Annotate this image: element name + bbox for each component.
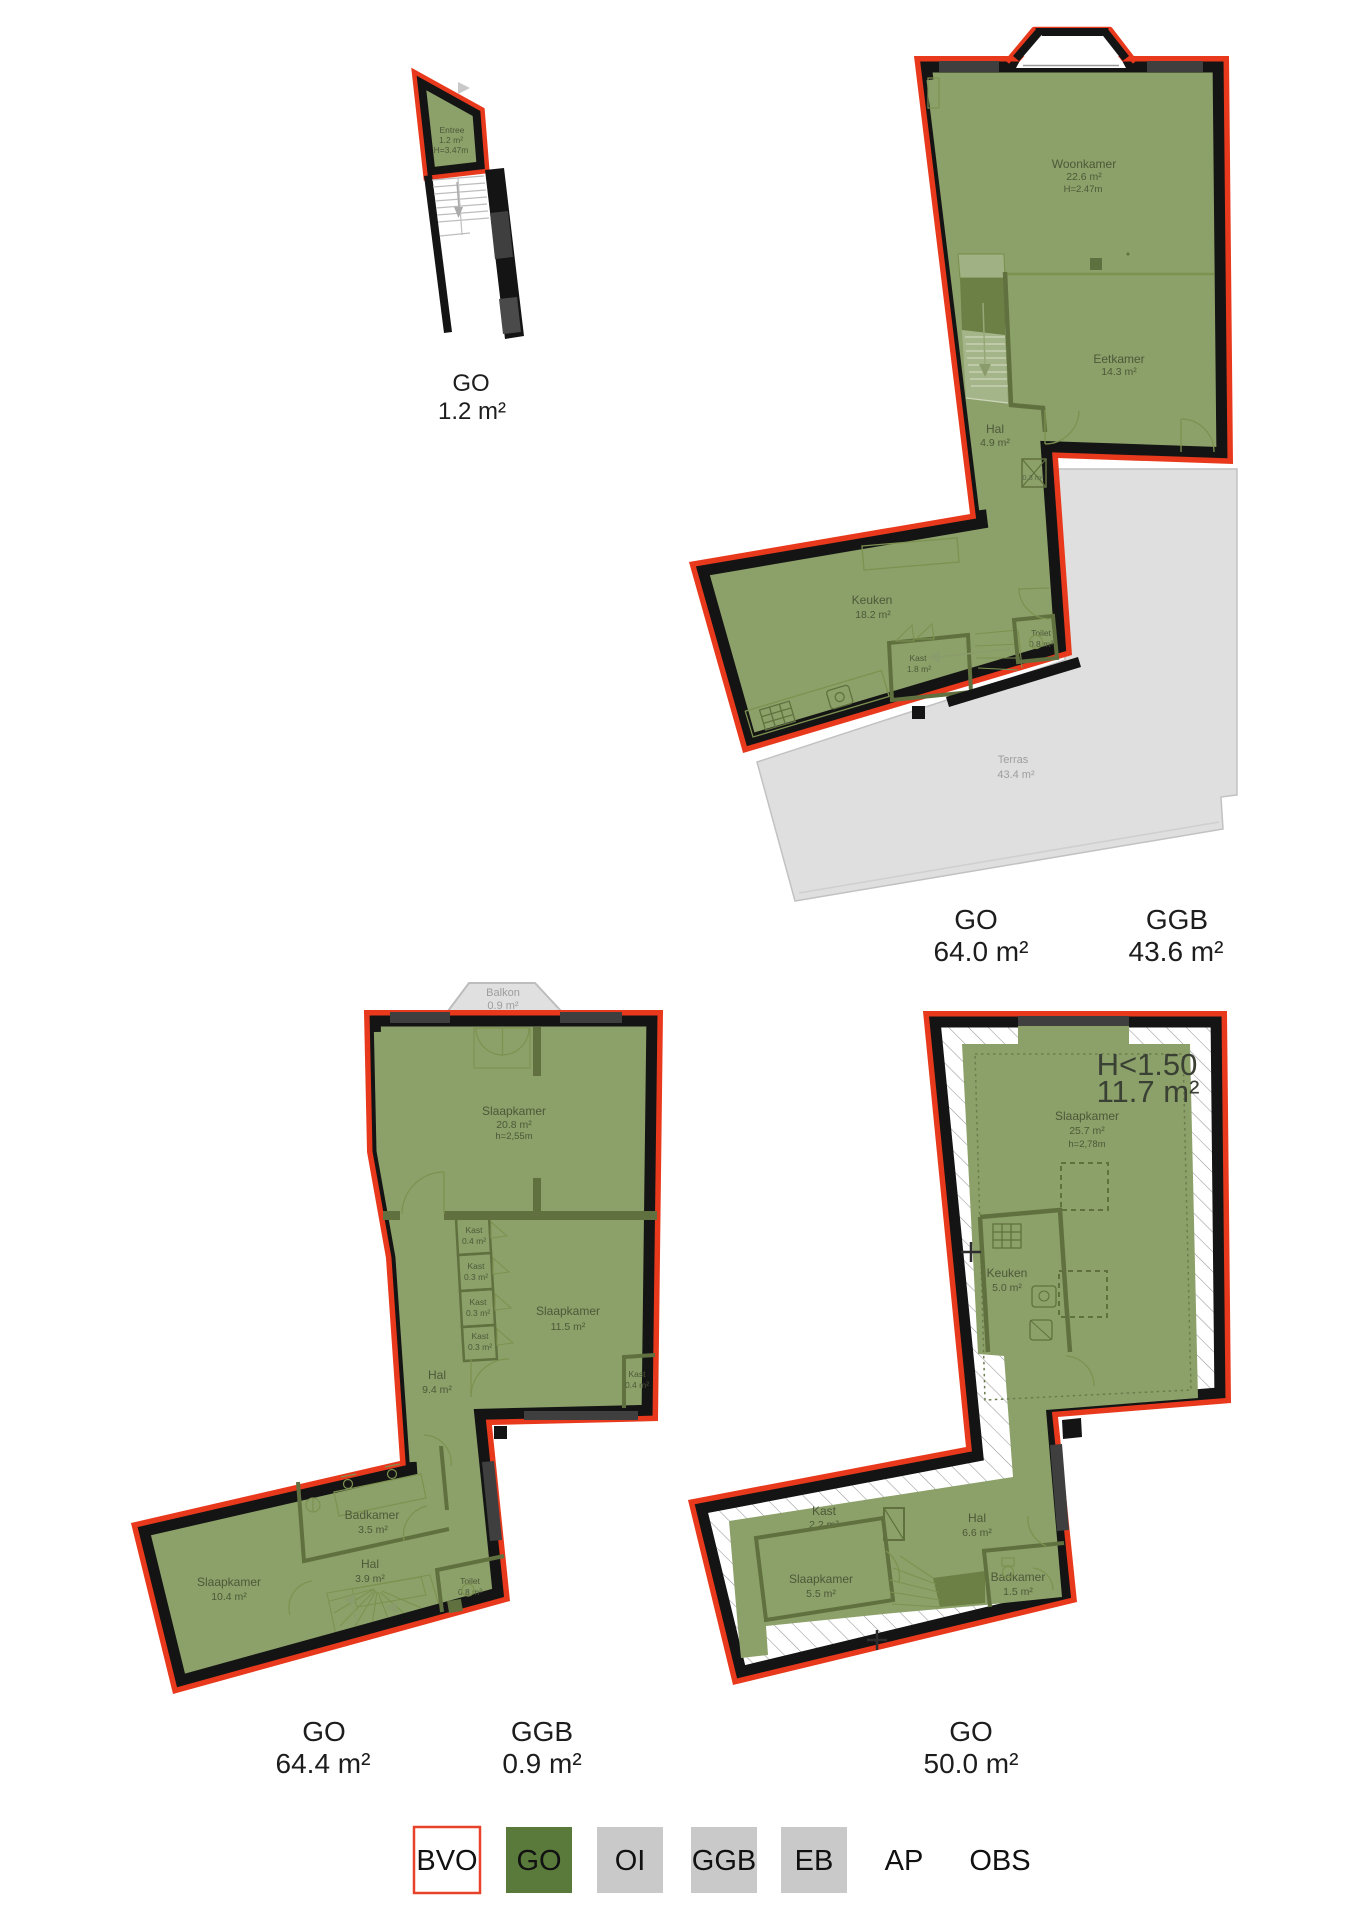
svg-text:64.4 m²: 64.4 m² <box>276 1748 371 1779</box>
svg-text:25.7 m²: 25.7 m² <box>1069 1125 1105 1137</box>
svg-text:Hal: Hal <box>428 1368 446 1382</box>
svg-text:14.3 m²: 14.3 m² <box>1101 366 1137 378</box>
svg-text:H=3.47m: H=3.47m <box>434 145 469 155</box>
svg-text:Kast: Kast <box>465 1225 483 1235</box>
svg-text:Kast: Kast <box>471 1331 489 1341</box>
svg-text:4.9 m²: 4.9 m² <box>980 437 1010 449</box>
svg-text:Slaapkamer: Slaapkamer <box>482 1104 546 1118</box>
svg-text:AP: AP <box>885 1845 924 1877</box>
svg-text:0.3 m²: 0.3 m² <box>464 1272 488 1282</box>
svg-text:11.7 m²: 11.7 m² <box>1097 1074 1200 1109</box>
svg-text:GGB: GGB <box>511 1716 573 1747</box>
svg-text:OBS: OBS <box>969 1845 1030 1877</box>
svg-text:0.3 m²: 0.3 m² <box>468 1342 492 1352</box>
svg-text:10.4 m²: 10.4 m² <box>211 1591 247 1603</box>
svg-text:GGB: GGB <box>692 1845 756 1877</box>
svg-text:Hal: Hal <box>986 422 1004 436</box>
svg-text:11.5 m²: 11.5 m² <box>551 1321 586 1333</box>
svg-text:h=2,55m: h=2,55m <box>495 1131 532 1142</box>
svg-text:h=2,78m: h=2,78m <box>1068 1139 1105 1150</box>
svg-text:Slaapkamer: Slaapkamer <box>197 1575 261 1589</box>
svg-text:1.2 m²: 1.2 m² <box>438 398 506 425</box>
svg-text:Hal: Hal <box>361 1557 379 1571</box>
svg-text:GO: GO <box>302 1716 346 1747</box>
svg-text:GO: GO <box>949 1716 993 1747</box>
svg-text:Kast: Kast <box>909 653 927 663</box>
svg-text:GGB: GGB <box>1146 904 1208 935</box>
svg-text:Badkamer: Badkamer <box>991 1570 1046 1584</box>
svg-text:0.3 m²: 0.3 m² <box>466 1308 490 1318</box>
svg-text:Toilet: Toilet <box>1031 628 1051 638</box>
svg-text:Eetkamer: Eetkamer <box>1093 352 1144 366</box>
svg-text:50.0 m²: 50.0 m² <box>924 1748 1019 1779</box>
svg-text:Entree: Entree <box>439 125 464 135</box>
svg-text:Kast: Kast <box>628 1369 646 1379</box>
svg-text:64.0 m²: 64.0 m² <box>934 936 1029 967</box>
svg-text:GO: GO <box>452 370 489 397</box>
svg-text:Badkamer: Badkamer <box>345 1508 400 1522</box>
svg-text:Keuken: Keuken <box>987 1266 1028 1280</box>
svg-text:Slaapkamer: Slaapkamer <box>536 1304 600 1318</box>
svg-text:3.5 m²: 3.5 m² <box>358 1524 388 1536</box>
svg-text:EB: EB <box>795 1845 834 1877</box>
svg-text:43.4 m²: 43.4 m² <box>997 769 1035 781</box>
svg-text:BVO: BVO <box>416 1845 477 1877</box>
svg-text:5.0 m²: 5.0 m² <box>992 1282 1022 1294</box>
svg-text:Slaapkamer: Slaapkamer <box>1055 1109 1119 1123</box>
svg-text:Terras: Terras <box>998 754 1029 766</box>
svg-text:0.3 m²: 0.3 m² <box>1022 473 1044 482</box>
svg-text:1.8 m²: 1.8 m² <box>907 664 931 674</box>
svg-text:1.5 m²: 1.5 m² <box>1003 1586 1033 1598</box>
svg-text:1.2 m²: 1.2 m² <box>439 135 463 145</box>
svg-text:Woonkamer: Woonkamer <box>1052 157 1116 171</box>
svg-text:6.6 m²: 6.6 m² <box>962 1527 992 1539</box>
svg-text:Kast: Kast <box>467 1261 485 1271</box>
svg-text:43.6 m²: 43.6 m² <box>1129 936 1224 967</box>
svg-text:0.4 m²: 0.4 m² <box>625 1380 649 1390</box>
svg-text:0.4 m²: 0.4 m² <box>462 1236 486 1246</box>
svg-text:Hal: Hal <box>968 1511 986 1525</box>
svg-text:9.4 m²: 9.4 m² <box>422 1384 452 1396</box>
svg-text:GO: GO <box>954 904 998 935</box>
svg-text:Slaapkamer: Slaapkamer <box>789 1572 853 1586</box>
svg-text:Kast: Kast <box>812 1504 837 1518</box>
svg-text:OI: OI <box>615 1845 646 1877</box>
svg-text:GO: GO <box>516 1845 561 1877</box>
svg-text:0.9 m²: 0.9 m² <box>502 1748 581 1779</box>
svg-text:20.8 m²: 20.8 m² <box>496 1119 532 1131</box>
svg-text:H=2.47m: H=2.47m <box>1064 184 1103 195</box>
svg-text:18.2 m²: 18.2 m² <box>855 609 891 621</box>
svg-text:Balkon: Balkon <box>486 987 520 999</box>
svg-text:22.6 m²: 22.6 m² <box>1066 171 1102 183</box>
svg-text:5.5 m²: 5.5 m² <box>806 1588 836 1600</box>
svg-text:Kast: Kast <box>469 1297 487 1307</box>
svg-text:Keuken: Keuken <box>852 593 893 607</box>
